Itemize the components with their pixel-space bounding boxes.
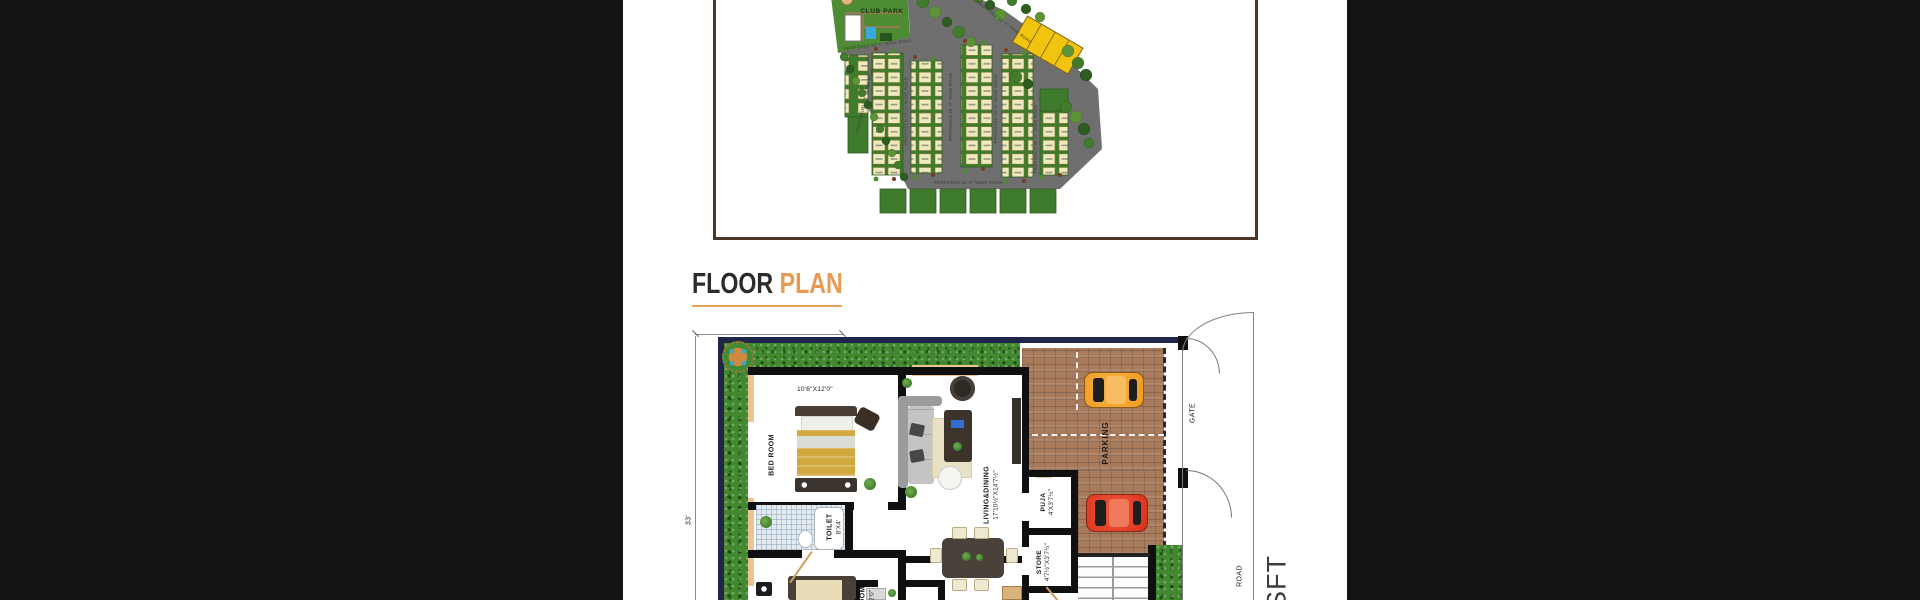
wall [1022,367,1029,470]
room-label-living-dining: LIVING&DINING17'10½"X14'7½" [984,466,1001,524]
car-icon [1086,494,1148,532]
window-band [748,498,754,586]
window-band [748,374,754,422]
room-label-puja: PUJA4'X3'7½" [1040,489,1056,516]
chair-icon [1006,548,1018,563]
bed-icon [788,576,856,600]
dimension-line-left [695,336,696,600]
wall [1022,528,1078,535]
wall [748,550,802,558]
cabinet-icon [1002,586,1022,600]
parking-marking [1076,352,1078,410]
room-label-bedroom2: BED ROOM10'0"X12'0" [860,586,877,600]
chair-icon [974,579,989,591]
bottom-plots [880,189,1056,213]
chair-icon [974,527,989,539]
coffee-table-icon [944,410,972,462]
hedge-top [724,343,1020,367]
plant-icon [864,478,876,490]
parking-floor [1022,348,1164,470]
toilet-icon [798,530,813,548]
wall [938,580,945,600]
wall [906,367,1028,375]
wall [898,558,906,600]
plant-icon [902,378,912,388]
dim-33ft: 33' [686,515,695,525]
round-chair-icon [950,376,975,401]
section-title-plan: PLAN [780,268,843,300]
hedge-corner [1156,545,1182,600]
label-area-sft: SFT [1262,555,1293,600]
wall [845,510,853,550]
chair-icon [952,527,967,539]
wall [900,556,932,563]
car-icon [1084,372,1144,408]
clubhouse-icon [845,15,861,41]
bed-icon [795,406,857,494]
plant-icon [888,589,896,597]
title-underline [692,305,842,307]
label-gate: GATE [1190,403,1199,423]
label-road: ROAD [1237,565,1246,587]
brochure-page: CLUB PARK [0,0,1920,600]
wall [1022,477,1029,493]
site-master-plan: CLUB PARK [716,0,1255,234]
room-label-bedroom: BED ROOM [769,434,778,476]
wall [888,502,906,510]
plot-boundary-dashed [1163,348,1166,556]
room-label-toilet: TOILET8'X4' [827,513,844,540]
road-label: PROPOSED 33'-0" WIDE ROAD [904,77,909,145]
road-label: PROPOSED 33'-0" WIDE ROAD [934,180,1002,185]
dining-table-icon [942,538,1004,578]
plant-icon [760,516,772,528]
section-title-floor: FLOOR [692,268,773,300]
stool-icon [756,582,772,596]
side-table-icon [938,466,962,490]
tv-unit-icon [1012,398,1021,464]
wall [834,550,906,558]
pool-icon [866,27,876,39]
road-label: PROPOSED 33'-0" WIDE ROAD [948,73,953,141]
label-parking: PARKING [1101,421,1111,464]
plot-boundary-line [1182,350,1183,600]
club-park-label: CLUB PARK [860,8,903,15]
dim-bedroom: 10'6"X12'0" [797,386,833,393]
dimension-line-top [695,334,843,335]
plant-icon [905,486,917,498]
wall [904,580,938,587]
hedge-left [724,367,748,600]
stair-divider [1112,557,1114,600]
road-label: PROPOSED 33'-0" WIDE ROAD [993,75,998,143]
stair-edge [1078,553,1150,557]
section-title: FLOOR PLAN [692,270,843,299]
wall [1022,470,1078,477]
parking-marking [1032,434,1164,436]
road-label: PROPOSED 33'-0" WIDE ROAD [1033,105,1038,173]
site-master-plan-box: CLUB PARK [713,0,1258,240]
road-edge-line [1253,312,1254,600]
chair-icon [930,548,942,563]
chair-icon [952,579,967,591]
wall [748,367,906,375]
room-label-store: STORE4'7½"X3'7½" [1036,543,1052,581]
